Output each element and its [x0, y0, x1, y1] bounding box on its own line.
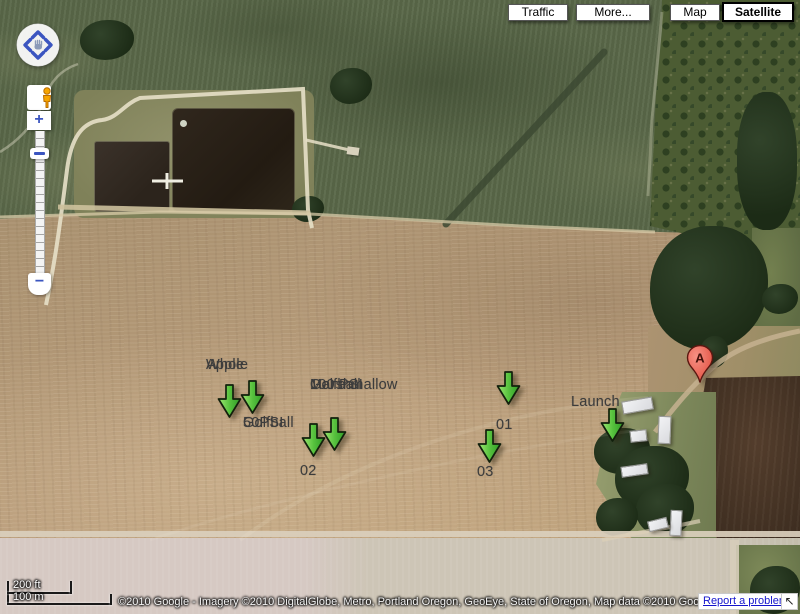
- street-view-pegman[interactable]: [27, 85, 51, 110]
- handle-bar: [34, 152, 45, 155]
- pan-return-button[interactable]: ↖: [781, 593, 798, 610]
- copyright-text: ©2010 Google - Imagery ©2010 DigitalGlob…: [118, 596, 724, 608]
- report-a-problem-box[interactable]: Report a problem: [698, 593, 793, 610]
- scale-bar-metric-line: [7, 603, 112, 605]
- toolbar-button-map[interactable]: Map: [670, 4, 720, 21]
- zoom-out-button[interactable]: −: [28, 273, 51, 295]
- map-canvas[interactable]: WholeApple50PSIGolfballGolfball100 PSIMa…: [0, 0, 800, 614]
- scale-bar-imperial-tick: [70, 581, 72, 594]
- zoom-in-button[interactable]: +: [27, 111, 51, 130]
- annotation-layer: WholeApple50PSIGolfballGolfball100 PSIMa…: [0, 0, 800, 614]
- report-a-problem-link[interactable]: Report a problem: [703, 595, 788, 607]
- scale-imperial-label: 200 ft: [13, 579, 41, 591]
- scale-metric-label: 100 m: [13, 591, 44, 603]
- pegman-icon: [39, 87, 55, 108]
- pan-control[interactable]: [15, 22, 61, 68]
- toolbar-button-satellite[interactable]: Satellite: [722, 2, 794, 22]
- toolbar-button-more[interactable]: More...: [576, 4, 650, 21]
- scale-bar-metric-tick: [110, 594, 112, 605]
- toolbar-button-traffic[interactable]: Traffic: [508, 4, 568, 21]
- pin-letter: A: [695, 351, 705, 366]
- attribution-bar: ©2010 Google - Imagery ©2010 DigitalGlob…: [118, 596, 788, 608]
- zoom-slider-handle[interactable]: [30, 148, 49, 159]
